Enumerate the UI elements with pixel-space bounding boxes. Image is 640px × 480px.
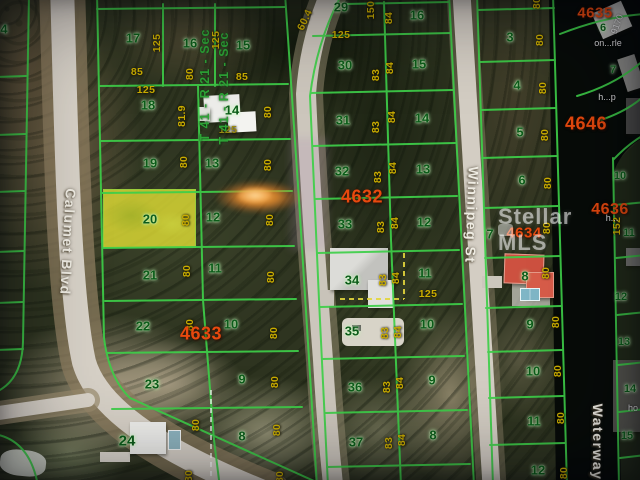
lot-label: 14 — [415, 111, 429, 126]
street-label: Winnipeg St — [462, 166, 481, 264]
lot-label: 33 — [338, 217, 352, 232]
lot-label: 9 — [526, 317, 533, 332]
dim-label: 80 — [265, 271, 277, 283]
street-label: Waterway — [590, 404, 606, 480]
lot-label: 6 — [518, 173, 525, 188]
dim-label: 83 — [370, 69, 382, 81]
dim-label: 84 — [384, 62, 396, 74]
dim-label: 85 — [236, 71, 248, 83]
dim-label: 80 — [184, 68, 196, 80]
dim-label: 80 — [558, 467, 570, 479]
block-label: 4635 — [577, 5, 612, 22]
dim-label: 80 — [271, 424, 283, 436]
lot-label: 11 — [418, 266, 432, 281]
dim-label: 80 — [274, 471, 286, 480]
dim-label: 125 — [419, 288, 437, 300]
fragment-label: h... — [606, 213, 619, 223]
dim-label: 125 — [332, 29, 350, 41]
dim-label: 83 — [370, 121, 382, 133]
lot-label: 9 — [238, 372, 245, 387]
dim-label: 80 — [264, 214, 276, 226]
lot-label: 21 — [143, 268, 157, 283]
lot-label: 14 — [624, 383, 636, 395]
lot-label: 6 — [600, 22, 606, 34]
lot-label: 19 — [143, 156, 157, 171]
dim-label: 83 — [377, 274, 389, 286]
fragment-label: h...p — [598, 92, 616, 102]
dim-label: 80 — [539, 129, 551, 141]
dim-label: 60.4 — [295, 8, 315, 33]
lot-label: 10 — [420, 317, 434, 332]
lot-label: 36 — [348, 380, 362, 395]
lot-label: 17 — [126, 31, 140, 46]
dim-label: 125 — [137, 84, 155, 96]
lot-label: 9 — [428, 373, 435, 388]
dim-label: 80 — [555, 412, 567, 424]
dim-label: 80 — [181, 265, 193, 277]
dim-label: 80 — [542, 177, 554, 189]
block-label: 4633 — [180, 324, 222, 345]
section-label: T 41 - R 21 - Sec — [217, 32, 231, 145]
dim-label: 80 — [552, 365, 564, 377]
dim-label: 80 — [269, 376, 281, 388]
dim-label: 83 — [372, 171, 384, 183]
lot-label: 16 — [410, 8, 424, 23]
dim-label: 125 — [151, 34, 163, 52]
dim-label: 84 — [389, 217, 401, 229]
block-label: 4632 — [341, 187, 383, 208]
dim-label: 80 — [183, 470, 195, 480]
lot-label: 31 — [336, 113, 350, 128]
section-label: T 41 - R 21 - Sec — [198, 29, 212, 142]
lot-label: 12 — [531, 463, 545, 478]
dim-label: 80 — [531, 0, 543, 9]
watermark-text: Stellar MLS — [498, 204, 572, 256]
dim-label: 84 — [394, 377, 406, 389]
dim-label: 83 — [379, 327, 391, 339]
dim-label: 80 — [534, 34, 546, 46]
dim-label: 84 — [390, 272, 402, 284]
street-label: Calumet Blvd — [57, 188, 79, 296]
lot-label: 8 — [521, 269, 528, 284]
dim-label: 80 — [540, 267, 552, 279]
lot-label: 10 — [614, 170, 626, 182]
lot-label: 18 — [141, 98, 155, 113]
lot-label: 29 — [334, 0, 348, 15]
lot-label: 12 — [615, 291, 627, 303]
lot-label: 24 — [119, 433, 136, 450]
dim-label: 84 — [383, 12, 395, 24]
fragment-label: ho — [628, 403, 638, 413]
lot-label: 32 — [335, 164, 349, 179]
dim-label: 84 — [396, 434, 408, 446]
lot-label: 13 — [416, 162, 430, 177]
lot-label: 4 — [0, 22, 7, 37]
dim-label: 80 — [262, 159, 274, 171]
dim-label: 80 — [262, 106, 274, 118]
dim-label: 84 — [387, 162, 399, 174]
lot-label: 16 — [183, 36, 197, 51]
dim-label: 80 — [268, 327, 280, 339]
lot-label: 37 — [349, 435, 363, 450]
dim-label: 84 — [392, 326, 404, 338]
lot-label: 13 — [205, 156, 219, 171]
dim-label: 83 — [375, 221, 387, 233]
lot-label: 7 — [610, 64, 616, 76]
lot-label: 12 — [206, 210, 220, 225]
dim-label: 80 — [178, 156, 190, 168]
lot-label: 15 — [412, 57, 426, 72]
lot-label: 11 — [208, 261, 222, 276]
lot-label: 30 — [338, 58, 352, 73]
lot-label: 7 — [486, 227, 493, 242]
lot-label: 8 — [238, 429, 245, 444]
lot-label: 3 — [506, 30, 513, 45]
dim-label: 150 — [365, 1, 377, 19]
fragment-label: on...rle — [594, 38, 622, 48]
dim-label: 84 — [386, 111, 398, 123]
lot-label: 35 — [345, 324, 359, 339]
block-label: 4646 — [565, 114, 607, 135]
lot-label: 15 — [621, 430, 633, 442]
plat-map-photo: 4171615181419132012211122102392482916301… — [0, 0, 640, 480]
lot-label: 5 — [516, 125, 523, 140]
lot-label: 12 — [417, 215, 431, 230]
dim-label: 85 — [131, 66, 143, 78]
dim-label: 80 — [180, 214, 192, 226]
lot-label: 20 — [143, 212, 157, 227]
lot-label: 23 — [145, 377, 159, 392]
lot-label: 10 — [224, 317, 238, 332]
lot-label: 34 — [345, 273, 359, 288]
lot-label: 13 — [618, 336, 630, 348]
dim-label: 83 — [381, 381, 393, 393]
lot-label: 10 — [526, 364, 540, 379]
dim-label: 81.9 — [176, 105, 188, 127]
lot-label: 22 — [136, 319, 150, 334]
lot-label: 15 — [236, 38, 250, 53]
lot-label: 4 — [513, 78, 520, 93]
lot-label: 11 — [527, 414, 541, 429]
lot-label: 8 — [429, 428, 436, 443]
dim-label: 83 — [383, 437, 395, 449]
dim-label: 80 — [190, 419, 202, 431]
dim-label: 80 — [537, 82, 549, 94]
lot-label: 11 — [623, 227, 635, 239]
dim-label: 80 — [550, 316, 562, 328]
